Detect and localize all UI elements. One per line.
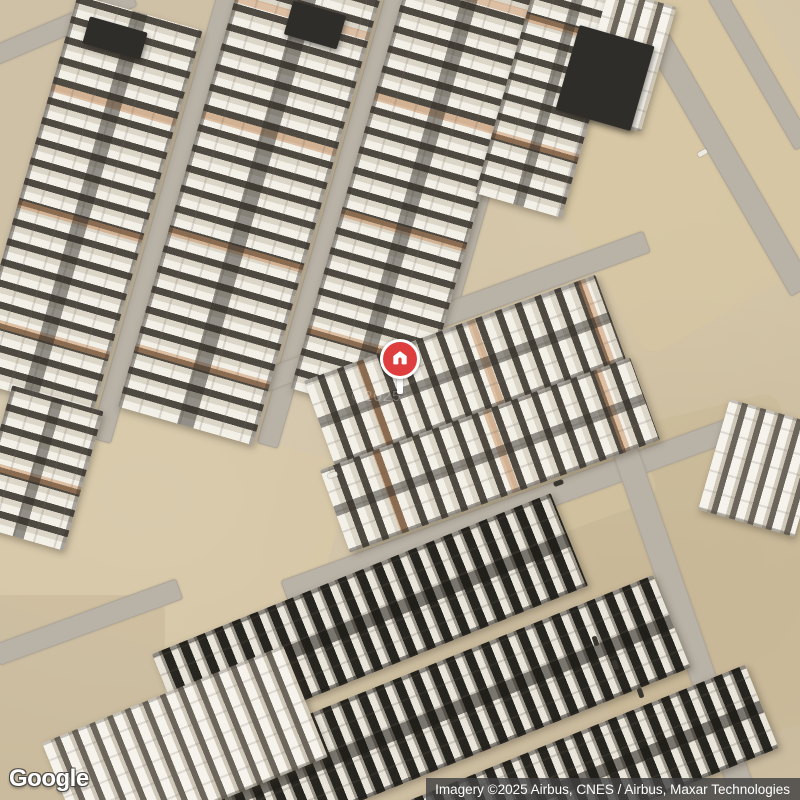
map-viewport[interactable]: ©2025 Google Imagery ©2025 Airbus, CNES … [0, 0, 800, 800]
attribution-bar: Imagery ©2025 Airbus, CNES / Airbus, Max… [426, 778, 800, 800]
home-icon [389, 348, 411, 370]
property-marker[interactable] [380, 339, 420, 395]
attribution-text: Imagery ©2025 Airbus, CNES / Airbus, Max… [435, 782, 790, 797]
marker-circle [380, 339, 420, 379]
google-logo[interactable]: Google [9, 765, 89, 793]
